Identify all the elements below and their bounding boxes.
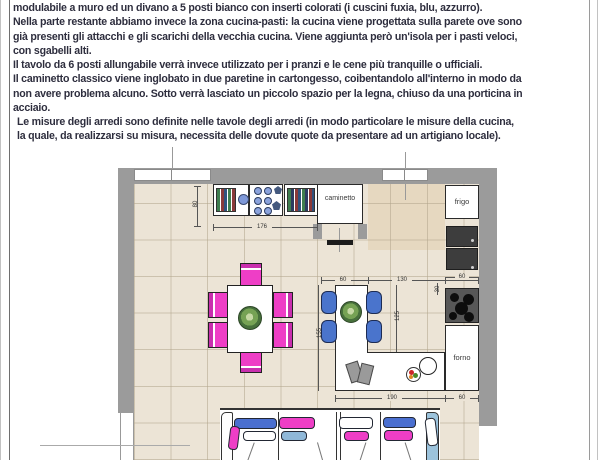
- burner-icon: [450, 293, 459, 302]
- page: modulabile a muro ed un divano a 5 posti…: [0, 0, 600, 460]
- sofa-cushion-fuchsia: [344, 431, 369, 441]
- extension-line: [405, 152, 406, 168]
- reference-line: [40, 445, 190, 446]
- island-plant-icon: [340, 301, 362, 323]
- island-stool: [321, 291, 337, 314]
- door-line: [120, 413, 121, 460]
- sofa: [220, 408, 440, 460]
- sofa-sketch-line: [405, 442, 413, 460]
- wall-right: [479, 168, 497, 426]
- sofa-cushion-white: [339, 417, 373, 429]
- dimension-label: 176: [252, 224, 272, 230]
- fridge-label: frigo: [445, 198, 479, 206]
- window: [382, 169, 428, 181]
- dimension-label: 155: [317, 324, 323, 342]
- wall-left: [118, 168, 134, 413]
- table-plant-icon: [238, 306, 262, 330]
- dim-tick: [213, 224, 214, 231]
- dim-tick: [478, 395, 479, 402]
- fruit-dot: [413, 373, 418, 378]
- sofa-cushion-fuchsia-small: [228, 425, 241, 450]
- text-line: la quale, da realizzarsi su misura, nece…: [13, 129, 591, 143]
- dimension-label: 190: [382, 395, 402, 401]
- island-sink-icon: [419, 357, 437, 375]
- extension-line: [172, 147, 173, 168]
- decor-circle-icon: [264, 197, 272, 205]
- page-border-right-outer: [597, 0, 598, 460]
- description-text-block: modulabile a muro ed un divano a 5 posti…: [13, 1, 591, 144]
- sofa-cushion-fuchsia: [384, 430, 413, 441]
- sofa-cushion-blue: [383, 417, 416, 428]
- dimension-label: 125: [395, 307, 401, 325]
- oven-handle-dot: [471, 239, 474, 242]
- decor-circle-icon: [254, 187, 262, 195]
- island-join-patch: [336, 351, 367, 354]
- books-row-icon: [287, 188, 315, 212]
- page-border-left-inner: [9, 0, 10, 460]
- window: [134, 169, 211, 181]
- sofa-divider: [380, 412, 381, 460]
- fireplace-hearth: [327, 240, 353, 245]
- dining-chair: [240, 263, 262, 287]
- books-row-icon: [216, 188, 236, 212]
- door-line: [133, 413, 134, 460]
- text-line: acciaio.: [13, 101, 591, 115]
- text-line: già presenti gli attacchi e gli scarichi…: [13, 30, 591, 44]
- dimension-label: 60: [454, 395, 470, 401]
- dimension-label: 30: [435, 282, 441, 296]
- sofa-sketch-line: [359, 442, 367, 460]
- window-mullion: [171, 169, 172, 181]
- sofa-divider: [336, 412, 337, 460]
- dim-tick: [368, 277, 369, 284]
- decor-circle-icon: [264, 187, 272, 195]
- sofa-sketch-line: [317, 442, 324, 460]
- decor-circle-icon: [254, 197, 262, 205]
- dining-chair: [208, 292, 228, 318]
- text-line: Il caminetto classico viene inglobato in…: [13, 72, 591, 86]
- sofa-cushion-lightblue: [281, 431, 307, 441]
- decor-ball-icon: [238, 194, 249, 205]
- dimension-label: 60: [335, 277, 351, 283]
- dim-tick: [321, 277, 322, 284]
- dining-chair: [273, 322, 293, 348]
- page-border-left-outer: [0, 0, 1, 460]
- text-line: Nella parte restante abbiamo invece la z…: [13, 15, 591, 29]
- dim-tick: [317, 224, 318, 231]
- dim-tick: [194, 186, 201, 187]
- dim-tick: [445, 277, 446, 284]
- burner-icon: [464, 312, 474, 322]
- fruit-dot: [409, 375, 413, 379]
- text-line: con sgabelli alti.: [13, 44, 591, 58]
- sofa-cushion-white: [243, 431, 276, 441]
- dimension-label: 80: [193, 196, 199, 212]
- sofa-cushion-fuchsia: [279, 417, 315, 429]
- text-line: modulabile a muro ed un divano a 5 posti…: [13, 1, 591, 15]
- decor-circle-icon: [264, 207, 272, 215]
- island-stool: [321, 320, 337, 343]
- window-mullion: [404, 169, 405, 181]
- oven-handle-dot: [471, 266, 474, 269]
- dim-tick: [335, 395, 336, 402]
- fireplace-box: [317, 184, 363, 224]
- text-line: non avere problema alcuno. Sotto verrà l…: [13, 87, 591, 101]
- island-stool: [366, 291, 382, 314]
- text-line: Le misure degli arredi sono definite nel…: [13, 115, 591, 129]
- fireplace-jamb: [358, 224, 367, 239]
- dim-tick: [194, 226, 201, 227]
- fireplace-label: caminetto: [317, 195, 363, 202]
- dining-chair: [273, 292, 293, 318]
- oven-tower-top: [446, 226, 478, 247]
- dining-chair: [208, 322, 228, 348]
- sofa-sketch-line: [246, 442, 254, 460]
- dimension-label: 130: [392, 277, 412, 283]
- oven-label: forno: [445, 354, 479, 362]
- dim-tick: [478, 277, 479, 284]
- extension-line: [405, 184, 406, 200]
- sofa-cushion-blue: [234, 418, 277, 429]
- text-line: Il tavolo da 6 posti allungabile verrà i…: [13, 58, 591, 72]
- dining-chair: [240, 352, 262, 373]
- decor-circle-icon: [254, 207, 262, 215]
- dim-tick: [445, 395, 446, 402]
- burner-icon: [449, 312, 457, 320]
- island-stool: [366, 320, 382, 343]
